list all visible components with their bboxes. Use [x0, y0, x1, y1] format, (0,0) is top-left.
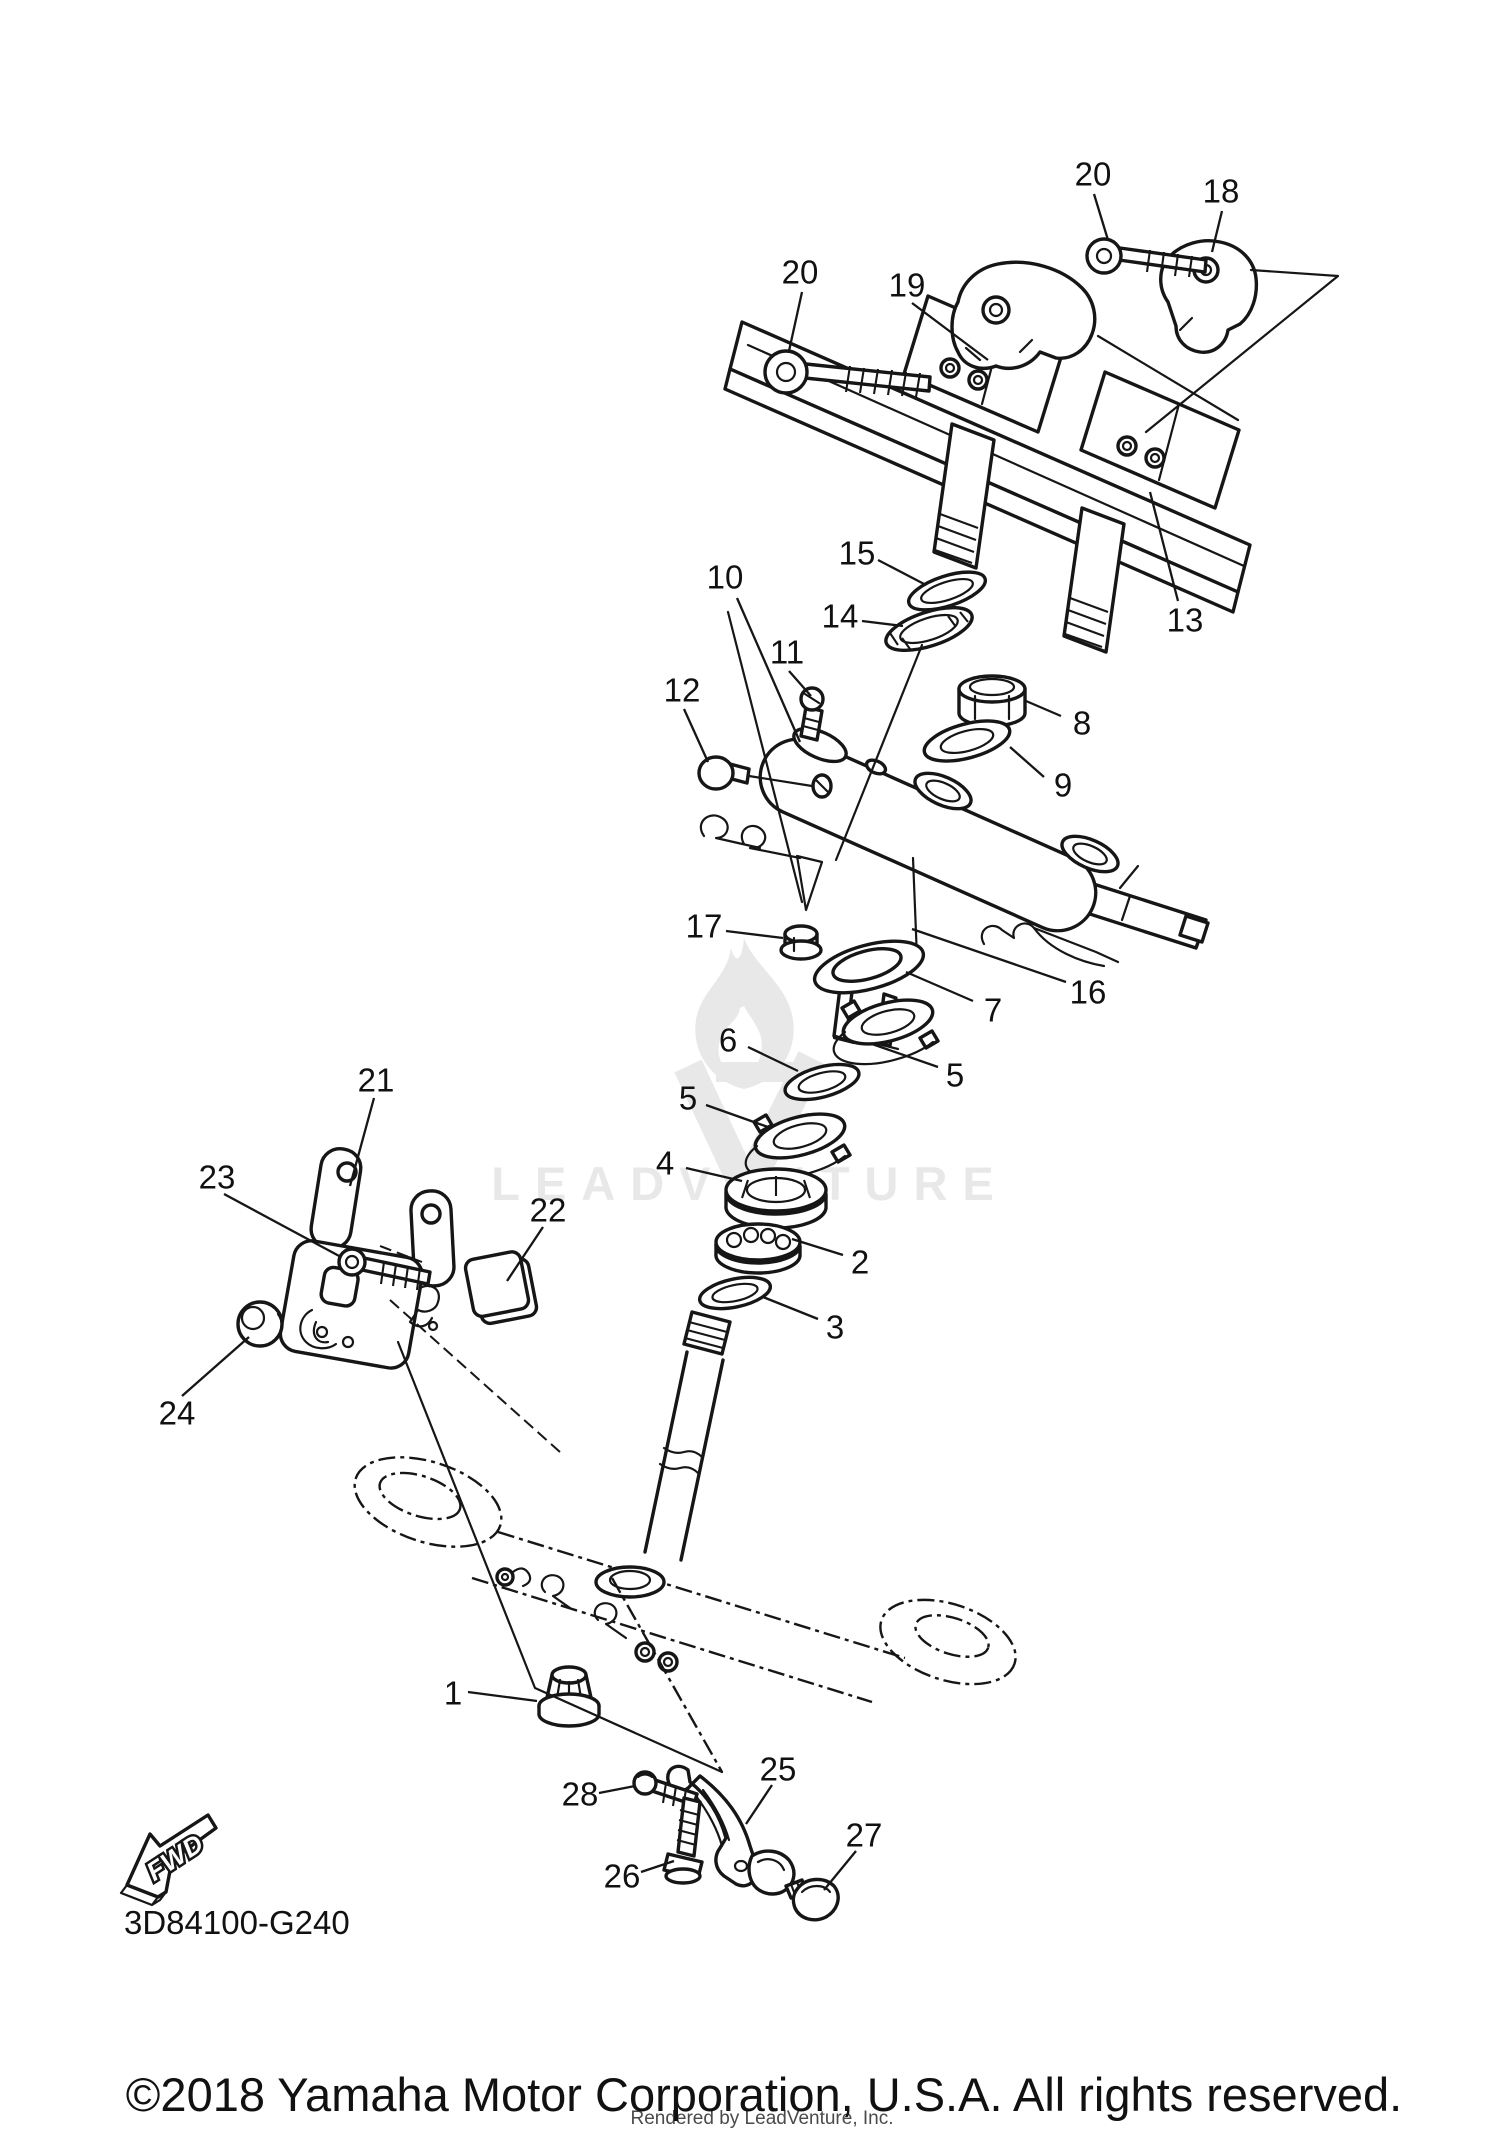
lower-bearing-2 [716, 1224, 800, 1273]
callout-label-10: 10 [707, 559, 744, 596]
callout-label-26: 26 [604, 1858, 641, 1895]
upper-bearing-4 [726, 1169, 826, 1228]
callout-label-9: 9 [1054, 767, 1072, 804]
bolt-26 [664, 1798, 702, 1883]
callout-label-24: 24 [159, 1395, 196, 1432]
stem-cap-1 [539, 1667, 599, 1726]
callout-label-23: 23 [199, 1159, 236, 1196]
callout-label-17: 17 [686, 908, 723, 945]
steering-stem [645, 1312, 730, 1560]
callout-label-25: 25 [760, 1751, 797, 1788]
callout-label-20b: 20 [1075, 156, 1112, 193]
callout-label-18: 18 [1203, 173, 1240, 210]
callout-label-5a: 5 [946, 1057, 964, 1094]
handlebar-upper-holder-19 [952, 262, 1095, 368]
callout-label-1: 1 [444, 1675, 462, 1712]
callout-label-12: 12 [664, 672, 701, 709]
pinch-bolt-11 [801, 688, 823, 740]
callout-label-22: 22 [530, 1192, 567, 1229]
callout-label-8: 8 [1073, 705, 1091, 742]
callout-label-4: 4 [656, 1145, 674, 1182]
callout-label-27: 27 [846, 1817, 883, 1854]
stay-axis-line [612, 1578, 722, 1772]
leadventure-watermark: LEADVENTURE [491, 938, 1009, 1210]
callout-label-7: 7 [984, 992, 1002, 1029]
callout-label-5b: 5 [679, 1080, 697, 1117]
ring-nut-5-upper [834, 992, 938, 1064]
callout-label-11: 11 [770, 634, 804, 671]
callout-label-21: 21 [358, 1062, 395, 1099]
seal-3 [697, 1272, 773, 1314]
pad-22 [464, 1250, 538, 1325]
callout-label-13: 13 [1167, 602, 1204, 639]
callout-label-28: 28 [562, 1776, 599, 1813]
wire-guide-left [701, 815, 822, 910]
cover-27 [786, 1879, 838, 1919]
callout-label-16: 16 [1070, 974, 1107, 1011]
fwd-arrow-icon: FWD [121, 1815, 216, 1905]
callout-label-14: 14 [822, 598, 859, 635]
callout-label-20a: 20 [782, 254, 819, 291]
nut-17 [781, 926, 821, 959]
steering-parts-diagram: LEADVENTURE [0, 0, 1500, 2135]
callout-label-6: 6 [719, 1022, 737, 1059]
callout-label-2: 2 [851, 1244, 869, 1281]
lower-triple-clamp [343, 1440, 1026, 1702]
copyright-text: ©2018 Yamaha Motor Corporation, U.S.A. A… [126, 2068, 1402, 2121]
callout-label-15: 15 [839, 535, 876, 572]
callout-label-3: 3 [826, 1309, 844, 1346]
callout-label-19: 19 [889, 267, 926, 304]
drawing-number: 3D84100-G240 [124, 1904, 350, 1941]
steering-nut-8 [959, 676, 1025, 726]
